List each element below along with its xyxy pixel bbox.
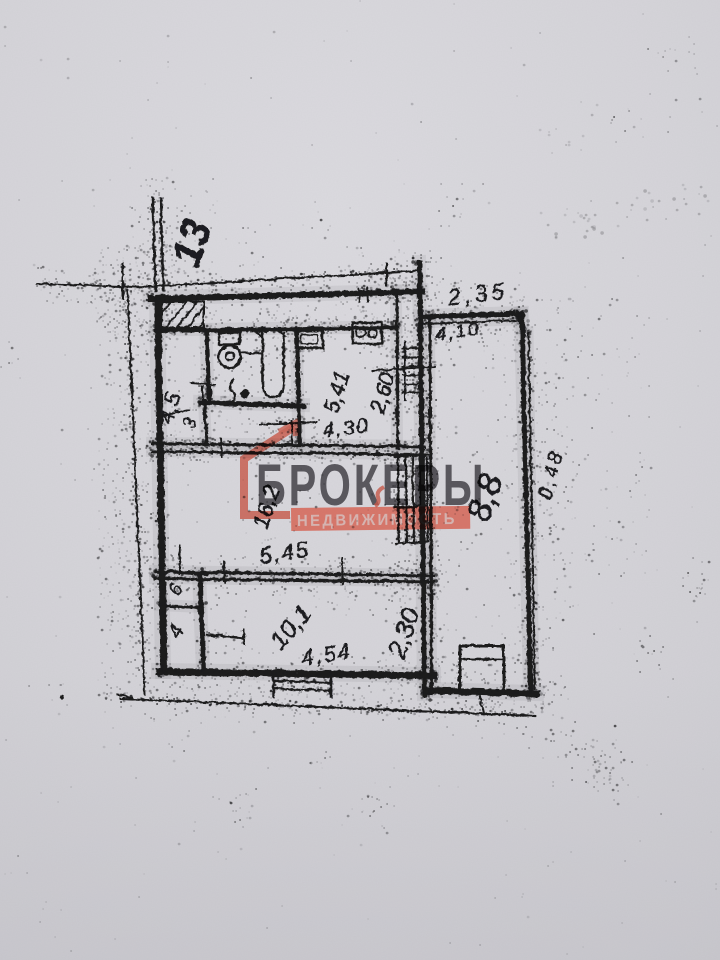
svg-text:НЕДВИЖИМОСТЬ: НЕДВИЖИМОСТЬ <box>297 510 457 530</box>
